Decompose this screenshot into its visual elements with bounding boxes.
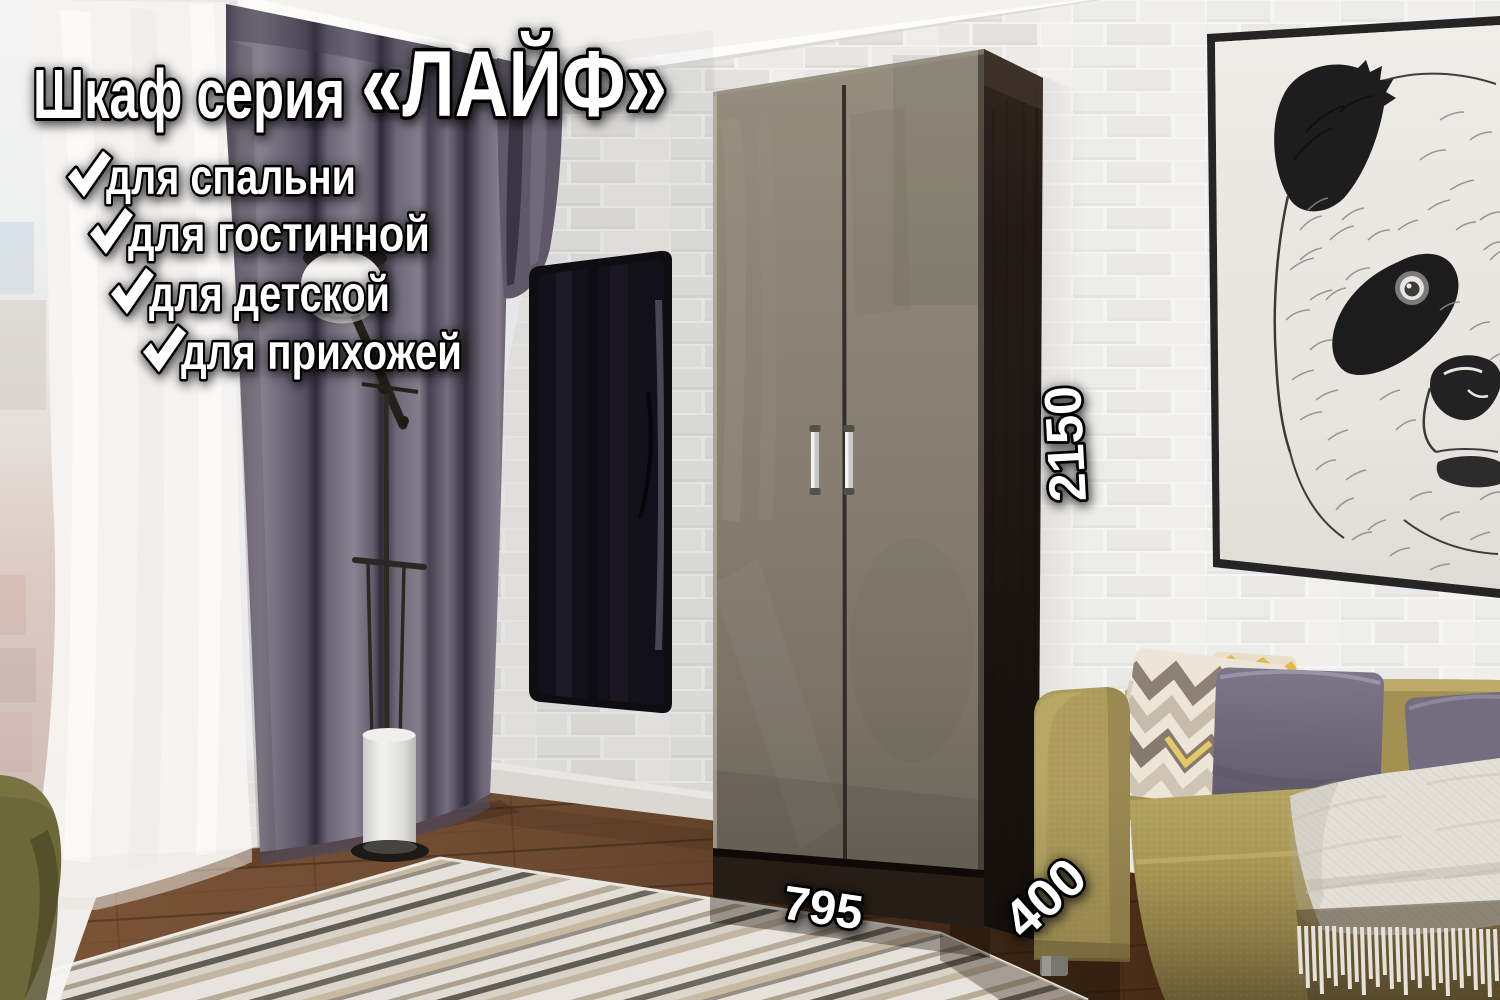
svg-text:2150: 2150 xyxy=(1034,385,1098,504)
svg-text:для гостинной: для гостинной xyxy=(128,206,430,262)
svg-text:для детской: для детской xyxy=(149,266,390,322)
svg-text:для спальни: для спальни xyxy=(106,149,356,205)
svg-text:795: 795 xyxy=(779,877,866,941)
svg-text:Шкаф серия: Шкаф серия xyxy=(33,55,345,133)
svg-text:«ЛАЙФ»: «ЛАЙФ» xyxy=(361,30,667,136)
svg-text:для прихожей: для прихожей xyxy=(181,324,462,380)
